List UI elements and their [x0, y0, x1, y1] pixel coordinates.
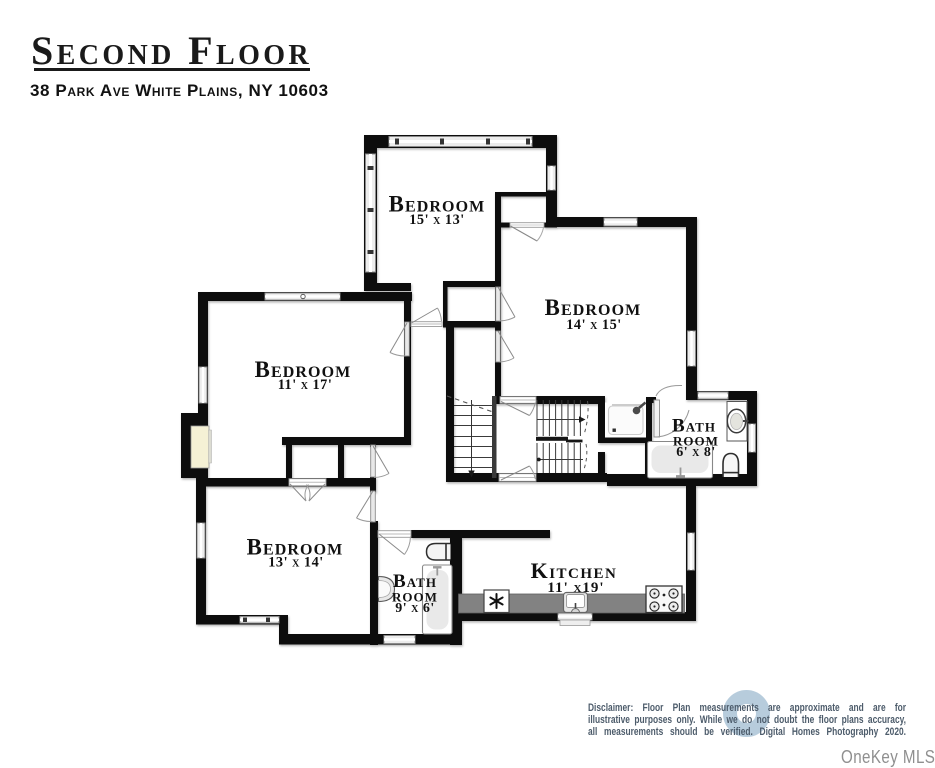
- svg-text:9' x 6': 9' x 6': [395, 601, 435, 616]
- svg-text:14' x 15': 14' x 15': [566, 317, 621, 333]
- svg-text:15' x 13': 15' x 13': [409, 212, 464, 228]
- svg-text:11' x 17': 11' x 17': [278, 377, 333, 393]
- svg-text:11' x19': 11' x19': [547, 580, 604, 596]
- svg-text:13' x 14': 13' x 14': [268, 555, 323, 571]
- svg-text:6' x 8': 6' x 8': [676, 445, 716, 460]
